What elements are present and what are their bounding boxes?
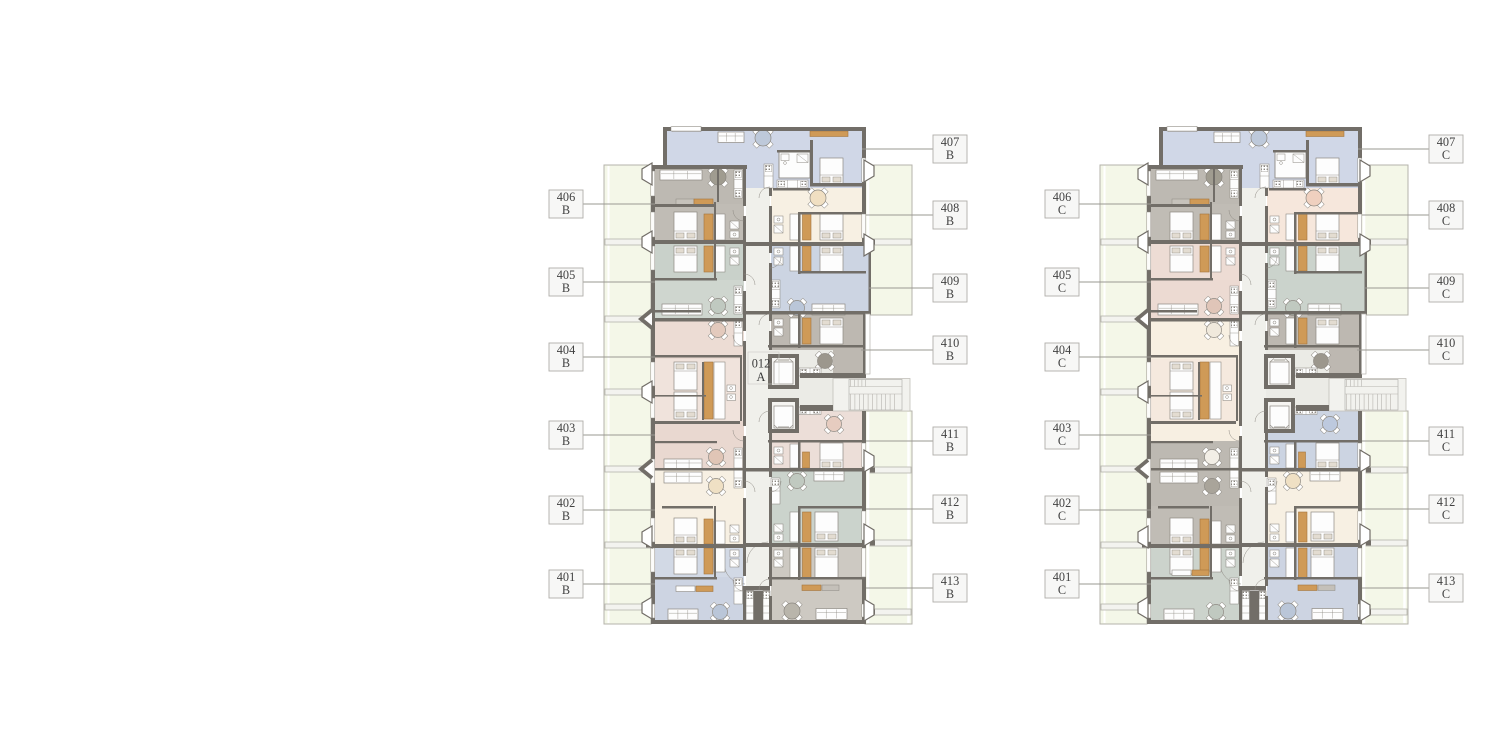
svg-text:C: C xyxy=(1442,508,1450,522)
svg-text:C: C xyxy=(1442,148,1450,162)
svg-text:B: B xyxy=(562,281,570,295)
svg-text:B: B xyxy=(946,349,954,363)
svg-text:C: C xyxy=(1442,440,1450,454)
svg-text:B: B xyxy=(946,508,954,522)
svg-text:B: B xyxy=(946,587,954,601)
svg-text:C: C xyxy=(1058,509,1066,523)
svg-text:B: B xyxy=(946,440,954,454)
svg-text:C: C xyxy=(1442,287,1450,301)
svg-text:B: B xyxy=(562,356,570,370)
svg-text:B: B xyxy=(562,203,570,217)
svg-text:C: C xyxy=(1442,587,1450,601)
svg-text:B: B xyxy=(946,214,954,228)
svg-text:C: C xyxy=(1442,349,1450,363)
svg-text:B: B xyxy=(946,287,954,301)
svg-text:B: B xyxy=(946,148,954,162)
svg-text:B: B xyxy=(562,434,570,448)
svg-text:C: C xyxy=(1058,434,1066,448)
svg-text:B: B xyxy=(562,583,570,597)
svg-text:012: 012 xyxy=(752,357,770,371)
svg-text:C: C xyxy=(1058,583,1066,597)
svg-text:B: B xyxy=(562,509,570,523)
svg-text:C: C xyxy=(1058,356,1066,370)
svg-text:C: C xyxy=(1058,203,1066,217)
svg-text:C: C xyxy=(1442,214,1450,228)
svg-text:C: C xyxy=(1058,281,1066,295)
svg-text:A: A xyxy=(757,370,766,384)
